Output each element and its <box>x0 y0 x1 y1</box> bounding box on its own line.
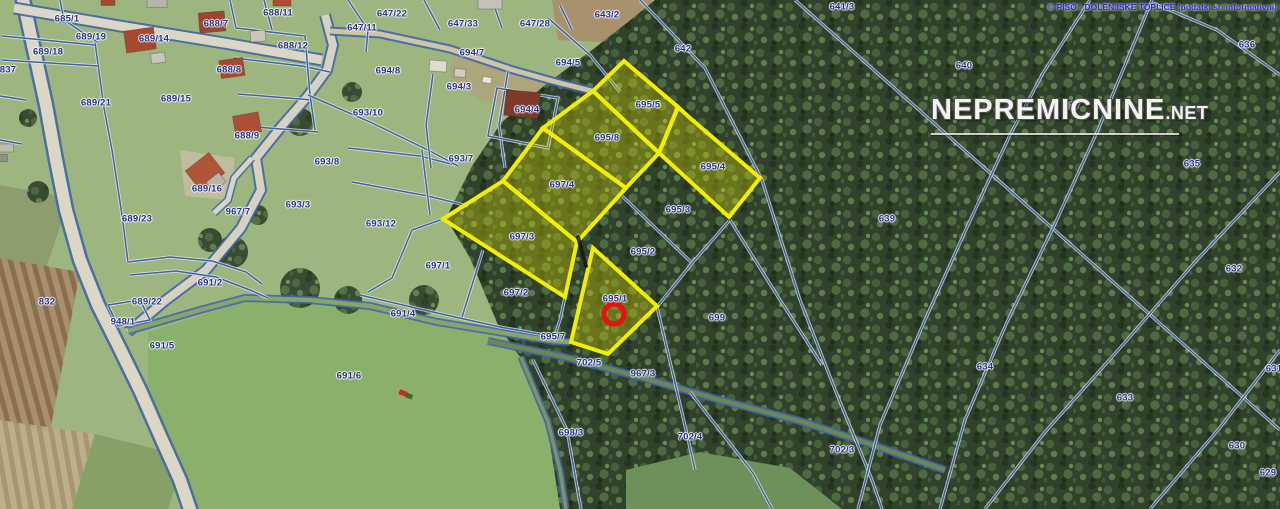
house-roof <box>429 60 447 72</box>
map-overlay <box>0 0 1280 509</box>
watermark-suffix: .NET <box>1165 103 1208 123</box>
map-viewport[interactable]: 685/1689/19689/18837689/14688/7688/11688… <box>0 0 1280 509</box>
house-roof <box>273 0 291 6</box>
house-roof <box>101 0 115 6</box>
house-roof <box>0 155 8 162</box>
house-roof <box>478 0 502 9</box>
house-roof <box>454 69 466 78</box>
watermark-text: NEPREMICNINE <box>931 94 1165 126</box>
house-roof <box>150 52 165 64</box>
map-attribution: © PISO - DOLENJSKE TOPLICE (podatki so i… <box>1048 2 1277 12</box>
house-roof <box>124 27 157 53</box>
tree-clump <box>19 109 37 127</box>
house-roof <box>219 57 245 78</box>
tree-clump <box>27 181 49 203</box>
house-roof <box>504 89 541 118</box>
watermark: NEPREMICNINE.NET <box>931 94 1208 127</box>
house-roof <box>250 30 266 42</box>
tree-clump <box>342 82 362 102</box>
house-roof <box>0 144 14 152</box>
watermark-underline <box>931 133 1179 135</box>
house-roof <box>482 76 492 83</box>
house-roof <box>232 112 261 136</box>
house-roof <box>198 11 226 33</box>
house-roof <box>147 0 167 8</box>
